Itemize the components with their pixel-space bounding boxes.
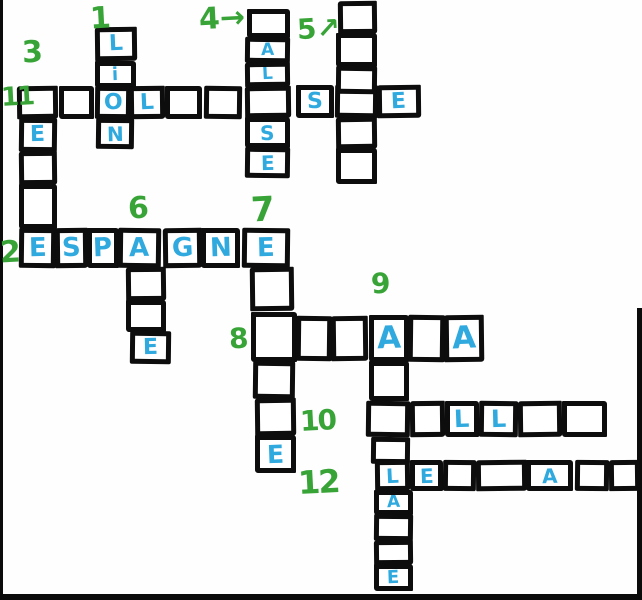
grid-cell[interactable]	[253, 361, 295, 400]
clue-number-10: 10	[299, 406, 335, 436]
grid-cell[interactable]: L	[445, 401, 479, 437]
grid-cell[interactable]: L	[479, 401, 518, 437]
clue-number-label: 2	[0, 235, 20, 271]
clue-number-label: 4	[198, 1, 219, 37]
cell-letter: E	[30, 124, 46, 146]
cell-letter: L	[139, 91, 154, 114]
grid-cell[interactable]	[19, 184, 57, 229]
grid-cell[interactable]: A	[245, 37, 290, 64]
grid-cell[interactable]: E	[377, 85, 421, 119]
grid-cell[interactable]: E	[245, 147, 290, 179]
grid-cell[interactable]: S	[55, 228, 88, 268]
clue-number-1: 1	[89, 4, 109, 35]
grid-cell[interactable]	[443, 460, 476, 491]
grid-cell[interactable]: i	[95, 61, 136, 88]
clue-number-label: 8	[228, 322, 247, 356]
grid-cell[interactable]	[336, 66, 377, 94]
clue-number-label: 3	[21, 35, 42, 71]
grid-cell[interactable]	[369, 361, 409, 401]
grid-cell[interactable]: A	[526, 460, 573, 491]
grid-cell[interactable]	[562, 401, 607, 437]
clue-number-2: 2	[0, 238, 20, 269]
cell-letter: G	[171, 235, 194, 262]
grid-cell[interactable]	[374, 514, 413, 541]
grid-cell[interactable]: E	[242, 228, 290, 269]
cell-letter: A	[261, 41, 275, 58]
grid-cell[interactable]	[19, 151, 57, 185]
clue-number-label: 12	[297, 462, 339, 502]
cell-letter: P	[93, 235, 113, 262]
cell-letter: O	[103, 91, 122, 113]
clue-number-5: 5↗	[296, 14, 340, 44]
crossword-worksheet: LiNOLSEALSEEESPAGNEEEAALLLEAAE134→5↗1126…	[0, 0, 642, 600]
grid-cell[interactable]: N	[96, 118, 134, 149]
cell-letter: E	[143, 336, 159, 358]
grid-cell[interactable]	[336, 148, 377, 184]
clue-number-7: 7	[250, 192, 273, 227]
grid-cell[interactable]: P	[87, 228, 119, 268]
grid-cell[interactable]	[518, 401, 562, 438]
grid-cell[interactable]	[575, 460, 609, 491]
grid-cell[interactable]: E	[374, 564, 413, 591]
grid-cell[interactable]	[165, 86, 202, 119]
grid-cell[interactable]	[251, 312, 297, 362]
cell-letter: A	[129, 235, 150, 261]
cell-letter: S	[62, 235, 82, 262]
cell-letter: E	[387, 568, 400, 586]
grid-cell[interactable]	[408, 315, 446, 362]
clue-number-label: 11	[0, 81, 34, 113]
cell-letter: L	[454, 407, 470, 432]
grid-cell[interactable]: A	[369, 315, 409, 362]
grid-cell[interactable]: A	[118, 228, 161, 269]
clue-number-label: 1	[89, 1, 110, 37]
cell-letter: A	[541, 465, 557, 486]
grid-cell[interactable]: E	[19, 118, 57, 152]
grid-cell[interactable]	[336, 33, 377, 67]
cell-letter: L	[491, 407, 507, 431]
grid-cell[interactable]	[250, 267, 295, 312]
clue-number-8: 8	[228, 325, 247, 354]
grid-cell[interactable]: A	[444, 315, 485, 362]
right-arrow-icon: →	[219, 3, 246, 34]
clue-number-12: 12	[297, 465, 339, 499]
clue-number-label: 7	[250, 189, 274, 230]
cell-letter: E	[260, 152, 274, 172]
cell-letter: A	[451, 322, 476, 354]
grid-cell[interactable]	[476, 460, 527, 492]
clue-number-6: 6	[127, 194, 147, 225]
grid-cell[interactable]	[331, 316, 369, 361]
grid-cell[interactable]: L	[245, 62, 290, 88]
cell-letter: S	[260, 122, 275, 142]
grid-cell[interactable]: E	[255, 435, 296, 473]
frame-right-edge	[637, 308, 642, 600]
frame-bottom-edge	[0, 594, 642, 600]
clue-number-11: 11	[0, 83, 34, 111]
cell-letter: L	[262, 66, 274, 83]
grid-cell[interactable]: S	[245, 117, 290, 148]
grid-cell[interactable]	[247, 9, 290, 38]
grid-cell[interactable]	[410, 401, 445, 437]
grid-cell[interactable]: N	[201, 228, 240, 268]
grid-cell[interactable]	[255, 398, 296, 436]
clue-number-label: 6	[127, 191, 148, 227]
cell-letter: A	[376, 323, 401, 355]
grid-cell[interactable]	[204, 86, 242, 119]
cell-letter: E	[391, 90, 407, 113]
clue-number-label: 5	[296, 12, 315, 46]
grid-cell[interactable]: A	[374, 490, 413, 515]
grid-cell[interactable]: S	[296, 85, 334, 118]
up-right-arrow-icon: ↗	[316, 14, 341, 43]
grid-cell[interactable]	[366, 401, 410, 438]
cell-letter: i	[112, 65, 119, 83]
cell-letter: E	[419, 465, 433, 485]
clue-number-label: 9	[370, 267, 389, 301]
grid-cell[interactable]: L	[375, 460, 410, 491]
cell-letter: A	[387, 494, 401, 511]
cell-letter: L	[108, 33, 123, 56]
grid-cell[interactable]	[126, 267, 166, 301]
cell-letter: L	[386, 465, 400, 486]
grid-cell[interactable]: E	[410, 460, 443, 491]
clue-number-4: 4→	[198, 3, 246, 35]
cell-letter: N	[209, 235, 232, 262]
grid-cell[interactable]: E	[19, 228, 56, 268]
grid-cell[interactable]	[336, 117, 377, 149]
grid-cell[interactable]	[245, 86, 291, 119]
clue-number-9: 9	[370, 270, 389, 299]
grid-cell[interactable]	[609, 460, 640, 491]
grid-cell[interactable]: L	[129, 86, 165, 119]
grid-cell[interactable]	[59, 86, 94, 119]
clue-number-label: 10	[299, 403, 336, 438]
grid-cell[interactable]: O	[95, 86, 131, 119]
cell-letter: E	[267, 441, 285, 467]
cell-letter: E	[257, 235, 275, 261]
grid-cell[interactable]: E	[130, 331, 171, 364]
grid-cell[interactable]	[296, 316, 333, 361]
grid-cell[interactable]	[374, 540, 413, 565]
cell-letter: E	[28, 235, 46, 261]
grid-cell[interactable]	[126, 300, 166, 332]
cell-letter: N	[106, 123, 123, 143]
grid-cell[interactable]: G	[163, 228, 202, 268]
cell-letter: S	[307, 90, 324, 113]
clue-number-3: 3	[21, 38, 41, 69]
grid-cell[interactable]	[338, 1, 377, 34]
